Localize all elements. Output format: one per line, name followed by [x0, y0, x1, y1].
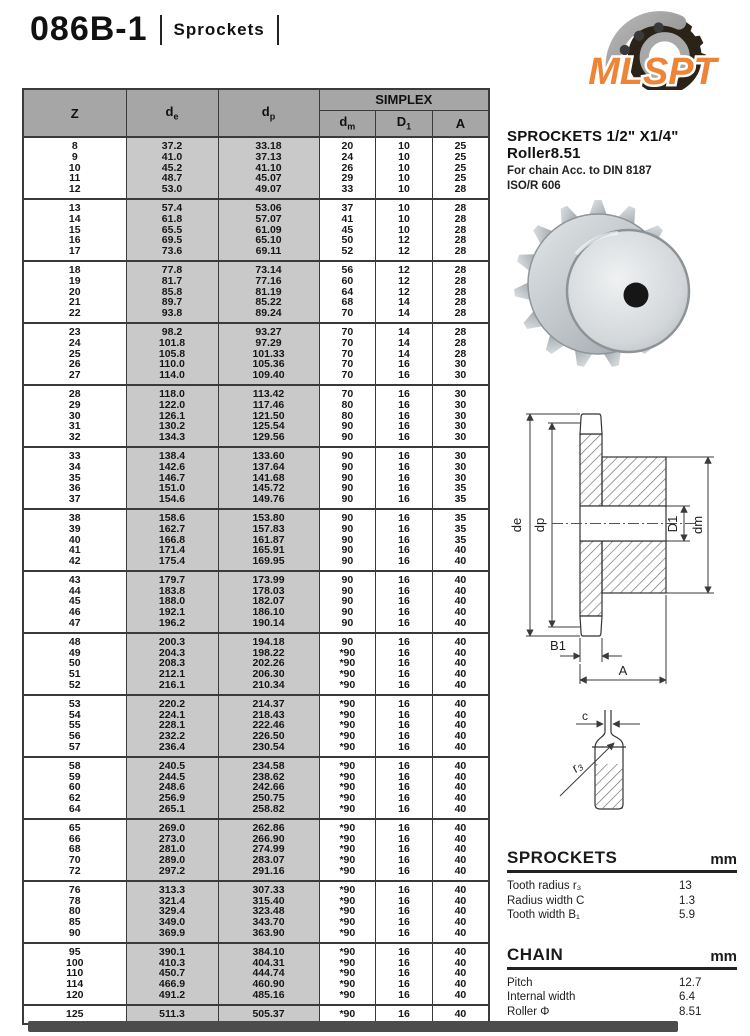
table-cell: 28 [432, 246, 489, 261]
table-cell: 30 [432, 385, 489, 400]
table-cell: 297.2 [126, 866, 218, 881]
table-group: 95390.1384.10*901640100410.3404.31*90164… [23, 943, 489, 1005]
col-header-dm: dm [319, 110, 376, 137]
table-cell: 369.9 [126, 928, 218, 943]
table-cell: 29 [23, 400, 126, 411]
table-row: 76313.3307.33*901640 [23, 881, 489, 896]
sprockets-spec-header: SPROCKETS mm [507, 848, 737, 873]
table-row: 37154.6149.76901635 [23, 494, 489, 509]
table-cell: 9 [23, 152, 126, 163]
table-cell: 16 [376, 943, 433, 958]
table-cell: 70 [319, 308, 376, 323]
table-cell: 313.3 [126, 881, 218, 896]
table-row: 1773.669.11521228 [23, 246, 489, 261]
table-cell: 61.8 [126, 214, 218, 225]
table-cell: 39 [23, 524, 126, 535]
table-cell: 40 [432, 990, 489, 1005]
table-cell: 154.6 [126, 494, 218, 509]
table-cell: 138.4 [126, 447, 218, 462]
table-row: 1253.049.07331028 [23, 184, 489, 199]
table-cell: 363.90 [218, 928, 319, 943]
table-cell: 65 [23, 819, 126, 834]
table-cell: 40 [432, 928, 489, 943]
chain-spec-block: CHAIN mm Pitch12.7Internal width6.4Rolle… [507, 945, 737, 1020]
table-cell: 175.4 [126, 556, 218, 571]
table-group: 1877.873.145612281981.777.166012282085.8… [23, 261, 489, 323]
table-cell: 70 [319, 323, 376, 338]
cross-section-diagram: de dp D1 dm B1 A [506, 400, 746, 692]
table-cell: 220.2 [126, 695, 218, 710]
table-cell: *90 [319, 819, 376, 834]
sprocket-table: Z de dp SIMPLEX dm D1 A 837.233.18201025… [22, 88, 490, 1025]
table-group: 28118.0113.4270163029122.0117.4680163030… [23, 385, 489, 447]
spec-value: 12.7 [679, 976, 737, 991]
table-row: 95390.1384.10*901640 [23, 943, 489, 958]
dim-label-r3: r₃ [568, 758, 585, 776]
table-cell: *90 [319, 990, 376, 1005]
table-cell: 47 [23, 618, 126, 633]
spec-label: Pitch [507, 976, 679, 991]
sprockets-spec-unit: mm [710, 851, 737, 868]
table-cell: 33 [23, 447, 126, 462]
table-cell: 43 [23, 571, 126, 586]
sprockets-spec-block: SPROCKETS mm Tooth radius r₃13Radius wid… [507, 848, 737, 923]
table-cell: 28 [432, 214, 489, 225]
table-cell: 262.86 [218, 819, 319, 834]
table-row: 64265.1258.82*901640 [23, 804, 489, 819]
table-cell: 41 [319, 214, 376, 225]
table-cell: 12 [376, 261, 433, 276]
table-cell: *90 [319, 881, 376, 896]
table-row: 58240.5234.58*901640 [23, 757, 489, 772]
spec-section: SPROCKETS mm Tooth radius r₃13Radius wid… [507, 848, 737, 1036]
table-cell: 40 [432, 866, 489, 881]
table-cell: 30 [432, 432, 489, 447]
dim-label-d1: D1 [665, 516, 680, 533]
table-cell: 390.1 [126, 943, 218, 958]
table-cell: 240.5 [126, 757, 218, 772]
table-cell: 16 [376, 757, 433, 772]
table-cell: 200.3 [126, 633, 218, 648]
table-row: 32134.3129.56901630 [23, 432, 489, 447]
table-cell: 89.24 [218, 308, 319, 323]
table-row: 57236.4230.54*901640 [23, 742, 489, 757]
table-row: 42175.4169.95901640 [23, 556, 489, 571]
page-subtitle: Sprockets [174, 20, 265, 40]
table-cell: *90 [319, 943, 376, 958]
tooth-profile-diagram: c r₃ [552, 710, 677, 818]
table-cell: 122.0 [126, 400, 218, 411]
spec-row: Tooth width B₁5.9 [507, 908, 737, 923]
col-header-d1: D1 [376, 110, 433, 137]
table-cell: 77.8 [126, 261, 218, 276]
product-standard-din: For chain Acc. to DIN 8187 [507, 165, 745, 177]
table-cell: 234.58 [218, 757, 319, 772]
table-cell: 33 [319, 184, 376, 199]
table-cell: 52 [23, 680, 126, 695]
table-cell: 48 [23, 633, 126, 648]
table-row: 1877.873.14561228 [23, 261, 489, 276]
table-row: 90369.9363.90*901640 [23, 928, 489, 943]
table-cell: 16 [376, 571, 433, 586]
table-cell: 10 [376, 199, 433, 214]
table-row: 2398.293.27701428 [23, 323, 489, 338]
table-cell: 90 [319, 633, 376, 648]
table-cell: 76 [23, 881, 126, 896]
table-cell: 28 [432, 184, 489, 199]
table-row: 38158.6153.80901635 [23, 509, 489, 524]
table-group: 53220.2214.37*90164054224.1218.43*901640… [23, 695, 489, 757]
table-cell: 35 [432, 494, 489, 509]
table-cell: 18 [23, 261, 126, 276]
table-cell: 37 [319, 199, 376, 214]
table-cell: 269.0 [126, 819, 218, 834]
table-group: 48200.3194.1890164049204.3198.22*9016405… [23, 633, 489, 695]
mlspt-logo: MLSPT [572, 6, 737, 90]
logo-text: MLSPT [588, 51, 719, 90]
table-cell: 40 [432, 819, 489, 834]
table-cell: 90 [319, 432, 376, 447]
table-row: 48200.3194.18901640 [23, 633, 489, 648]
table-cell: 16 [376, 494, 433, 509]
table-cell: 120 [23, 990, 126, 1005]
table-cell: 81.7 [126, 276, 218, 287]
table-cell: 129.56 [218, 432, 319, 447]
table-cell: 90 [319, 556, 376, 571]
table-cell: 90 [319, 509, 376, 524]
table-cell: 14 [376, 308, 433, 323]
table-row: 39162.7157.83901635 [23, 524, 489, 535]
spec-row: Radius width C1.3 [507, 894, 737, 909]
page-header: 086B-1 Sprockets [30, 10, 291, 49]
table-cell: 19 [23, 276, 126, 287]
table-cell: 109.40 [218, 370, 319, 385]
table-cell: 70 [319, 385, 376, 400]
table-cell: 25 [432, 137, 489, 152]
col-header-z: Z [23, 89, 126, 137]
product-heading: SPROCKETS 1/2" X1/4" Roller8.51 [507, 128, 745, 162]
table-row: 29122.0117.46801630 [23, 400, 489, 411]
table-group: 58240.5234.58*90164059244.5238.62*901640… [23, 757, 489, 819]
spec-row: Roller Φ8.51 [507, 1005, 737, 1020]
table-row: 1981.777.16601228 [23, 276, 489, 287]
table-cell: 37 [23, 494, 126, 509]
table-cell: 157.83 [218, 524, 319, 535]
spec-label: Radius width C [507, 894, 679, 909]
sprockets-spec-rows: Tooth radius r₃13Radius width C1.3Tooth … [507, 879, 737, 923]
spec-row: Pitch12.7 [507, 976, 737, 991]
table-cell: 28 [23, 385, 126, 400]
table-row: 1461.857.07411028 [23, 214, 489, 225]
spec-value: 13 [679, 879, 737, 894]
table-row: 34142.6137.64901630 [23, 462, 489, 473]
sprockets-spec-title: SPROCKETS [507, 848, 617, 868]
spec-value: 1.3 [679, 894, 737, 909]
table-cell: 53 [23, 695, 126, 710]
table-cell: 90 [319, 618, 376, 633]
table-cell: 196.2 [126, 618, 218, 633]
table-cell: 49.07 [218, 184, 319, 199]
table-cell: 90 [319, 524, 376, 535]
table-cell: 28 [432, 323, 489, 338]
spec-label: Roller Φ [507, 1005, 679, 1020]
table-cell: 194.18 [218, 633, 319, 648]
table-row: 24101.897.29701428 [23, 338, 489, 349]
table-cell: 12 [23, 184, 126, 199]
chain-spec-header: CHAIN mm [507, 945, 737, 970]
table-cell: 73.6 [126, 246, 218, 261]
table-cell: 90 [319, 462, 376, 473]
table-cell: 16 [376, 881, 433, 896]
table-row: 33138.4133.60901630 [23, 447, 489, 462]
chain-spec-rows: Pitch12.7Internal width6.4Roller Φ8.51 [507, 976, 737, 1020]
table-cell: 133.60 [218, 447, 319, 462]
table-group: 837.233.18201025941.037.132410251045.241… [23, 137, 489, 199]
table-cell: 97.29 [218, 338, 319, 349]
table-cell: 28 [432, 276, 489, 287]
table-cell: 16 [376, 385, 433, 400]
table-cell: 16 [376, 928, 433, 943]
table-cell: 153.80 [218, 509, 319, 524]
table-cell: 12 [376, 246, 433, 261]
table-cell: 38 [23, 509, 126, 524]
table-cell: 173.99 [218, 571, 319, 586]
table-cell: 114.0 [126, 370, 218, 385]
table-cell: *90 [319, 804, 376, 819]
table-cell: 117.46 [218, 400, 319, 411]
table-cell: 42 [23, 556, 126, 571]
table-cell: 28 [432, 261, 489, 276]
table-cell: 14 [376, 323, 433, 338]
table-cell: 149.76 [218, 494, 319, 509]
table-cell: 32 [23, 432, 126, 447]
table-cell: 258.82 [218, 804, 319, 819]
table-cell: 37.2 [126, 137, 218, 152]
table-group: 2398.293.2770142824101.897.2970142825105… [23, 323, 489, 385]
table-row: 837.233.18201025 [23, 137, 489, 152]
table-cell: 28 [432, 308, 489, 323]
table-cell: 90 [23, 928, 126, 943]
table-header: Z de dp SIMPLEX dm D1 A [23, 89, 489, 137]
table-cell: 230.54 [218, 742, 319, 757]
table-row: 53220.2214.37*901640 [23, 695, 489, 710]
table-cell: 93.8 [126, 308, 218, 323]
table-cell: 179.7 [126, 571, 218, 586]
table-cell: 14 [23, 214, 126, 225]
table-cell: 57 [23, 742, 126, 757]
table-cell: 40 [432, 556, 489, 571]
table-cell: 16 [376, 742, 433, 757]
table-cell: 210.34 [218, 680, 319, 695]
spec-row: Internal width6.4 [507, 990, 737, 1005]
table-cell: *90 [319, 928, 376, 943]
table-cell: 53.0 [126, 184, 218, 199]
table-cell: 77.16 [218, 276, 319, 287]
table-cell: *90 [319, 742, 376, 757]
table-row: 72297.2291.16*901640 [23, 866, 489, 881]
table-cell: 16 [376, 618, 433, 633]
table-cell: 73.14 [218, 261, 319, 276]
table-cell: 16 [376, 680, 433, 695]
table-cell: 41.0 [126, 152, 218, 163]
table-cell: 40 [432, 695, 489, 710]
spec-value: 6.4 [679, 990, 737, 1005]
table-cell: 142.6 [126, 462, 218, 473]
table-cell: 98.2 [126, 323, 218, 338]
table-cell: 80 [319, 400, 376, 411]
table-row: 941.037.13241025 [23, 152, 489, 163]
table-cell: 35 [432, 509, 489, 524]
table-cell: 113.42 [218, 385, 319, 400]
table-cell: *90 [319, 680, 376, 695]
table-cell: 72 [23, 866, 126, 881]
table-cell: *90 [319, 757, 376, 772]
table-cell: 10 [376, 184, 433, 199]
table-cell: 10 [376, 152, 433, 163]
table-cell: 236.4 [126, 742, 218, 757]
table-cell: 40 [432, 633, 489, 648]
spec-label: Tooth width B₁ [507, 908, 679, 923]
table-cell: 95 [23, 943, 126, 958]
table-cell: 40 [432, 571, 489, 586]
product-info: SPROCKETS 1/2" X1/4" Roller8.51 For chai… [507, 128, 745, 192]
section-body [580, 414, 666, 636]
table-cell: 216.1 [126, 680, 218, 695]
chain-spec-unit: mm [710, 948, 737, 965]
table-cell: 16 [376, 804, 433, 819]
table-cell: 134.3 [126, 432, 218, 447]
dim-label-a: A [619, 663, 628, 678]
page-bottom-shadow [28, 1021, 678, 1032]
table-cell: 137.64 [218, 462, 319, 473]
table-cell: 25 [432, 152, 489, 163]
dim-label-dp: dp [532, 518, 547, 532]
table-cell: 16 [376, 447, 433, 462]
spec-value: 8.51 [679, 1005, 737, 1020]
table-row: 2293.889.24701428 [23, 308, 489, 323]
table-row: 28118.0113.42701630 [23, 385, 489, 400]
dim-label-de: de [509, 518, 524, 532]
page-title: 086B-1 [30, 10, 148, 49]
col-header-a: A [432, 110, 489, 137]
dim-label-b1: B1 [550, 638, 566, 653]
table-cell: 40 [432, 881, 489, 896]
dim-label-c: c [582, 710, 588, 723]
table-cell: 40 [432, 742, 489, 757]
table-cell: 16 [376, 695, 433, 710]
table-cell: 22 [23, 308, 126, 323]
table-cell: 16 [376, 462, 433, 473]
table-row: 1357.453.06371028 [23, 199, 489, 214]
table-cell: 28 [432, 199, 489, 214]
table-cell: 33.18 [218, 137, 319, 152]
table-cell: 10 [376, 137, 433, 152]
table-row: 65269.0262.86*901640 [23, 819, 489, 834]
table-cell: 491.2 [126, 990, 218, 1005]
title-divider [160, 15, 162, 45]
table-cell: 30 [432, 370, 489, 385]
table-cell: 70 [319, 338, 376, 349]
table-cell: 90 [319, 571, 376, 586]
table-group: 33138.4133.6090163034142.6137.6490163035… [23, 447, 489, 509]
table-cell: 14 [376, 338, 433, 349]
table-cell: 57.4 [126, 199, 218, 214]
spec-value: 5.9 [679, 908, 737, 923]
table-cell: 118.0 [126, 385, 218, 400]
table-cell: 307.33 [218, 881, 319, 896]
col-header-de: de [126, 89, 218, 137]
table-cell: 13 [23, 199, 126, 214]
table-group: 1357.453.063710281461.857.074110281565.5… [23, 199, 489, 261]
table-cell: *90 [319, 695, 376, 710]
table-cell: 16 [376, 370, 433, 385]
table-cell: 16 [376, 432, 433, 447]
table-group: 43179.7173.9990164044183.8178.0390164045… [23, 571, 489, 633]
table-cell: 16 [376, 819, 433, 834]
table-row: 52216.1210.34*901640 [23, 680, 489, 695]
table-cell: 40 [432, 680, 489, 695]
table-cell: 16 [376, 556, 433, 571]
product-standard-iso: ISO/R 606 [507, 180, 745, 192]
table-cell: 30 [432, 447, 489, 462]
chain-spec-title: CHAIN [507, 945, 563, 965]
table-cell: 64 [23, 804, 126, 819]
table-cell: 8 [23, 137, 126, 152]
table-cell: 60 [319, 276, 376, 287]
table-cell: 16 [376, 509, 433, 524]
table-group: 38158.6153.8090163539162.7157.8390163540… [23, 509, 489, 571]
table-cell: 70 [319, 370, 376, 385]
table-cell: 17 [23, 246, 126, 261]
table-cell: 52 [319, 246, 376, 261]
table-group: 76313.3307.33*90164078321.4315.40*901640… [23, 881, 489, 943]
col-header-dp: dp [218, 89, 319, 137]
table-row: 47196.2190.14901640 [23, 618, 489, 633]
table-cell: 30 [432, 400, 489, 411]
table-cell: 69.11 [218, 246, 319, 261]
datasheet-page: 086B-1 Sprockets [0, 0, 750, 1036]
table-cell: 35 [432, 524, 489, 535]
table-cell: 485.16 [218, 990, 319, 1005]
table-row: 27114.0109.40701630 [23, 370, 489, 385]
table-cell: 24 [23, 338, 126, 349]
table-cell: 291.16 [218, 866, 319, 881]
table-cell: 53.06 [218, 199, 319, 214]
spec-label: Tooth radius r₃ [507, 879, 679, 894]
title-divider [277, 15, 279, 45]
sprocket-photo [506, 194, 744, 374]
table-cell: 56 [319, 261, 376, 276]
table-row: 43179.7173.99901640 [23, 571, 489, 586]
table-cell: 93.27 [218, 323, 319, 338]
table-cell: 16 [376, 866, 433, 881]
col-header-simplex: SIMPLEX [319, 89, 489, 110]
table-cell: 28 [432, 338, 489, 349]
table-row: 120491.2485.16*901640 [23, 990, 489, 1005]
sprocket-bore-hole [624, 283, 649, 308]
table-cell: 16 [376, 990, 433, 1005]
table-cell: 20 [319, 137, 376, 152]
table-cell: 27 [23, 370, 126, 385]
table-cell: 58 [23, 757, 126, 772]
table-cell: 16 [376, 524, 433, 535]
table-cell: 169.95 [218, 556, 319, 571]
table-cell: 265.1 [126, 804, 218, 819]
table-cell: 24 [319, 152, 376, 163]
table-cell: 57.07 [218, 214, 319, 225]
table-cell: 158.6 [126, 509, 218, 524]
table-cell: 37.13 [218, 152, 319, 163]
